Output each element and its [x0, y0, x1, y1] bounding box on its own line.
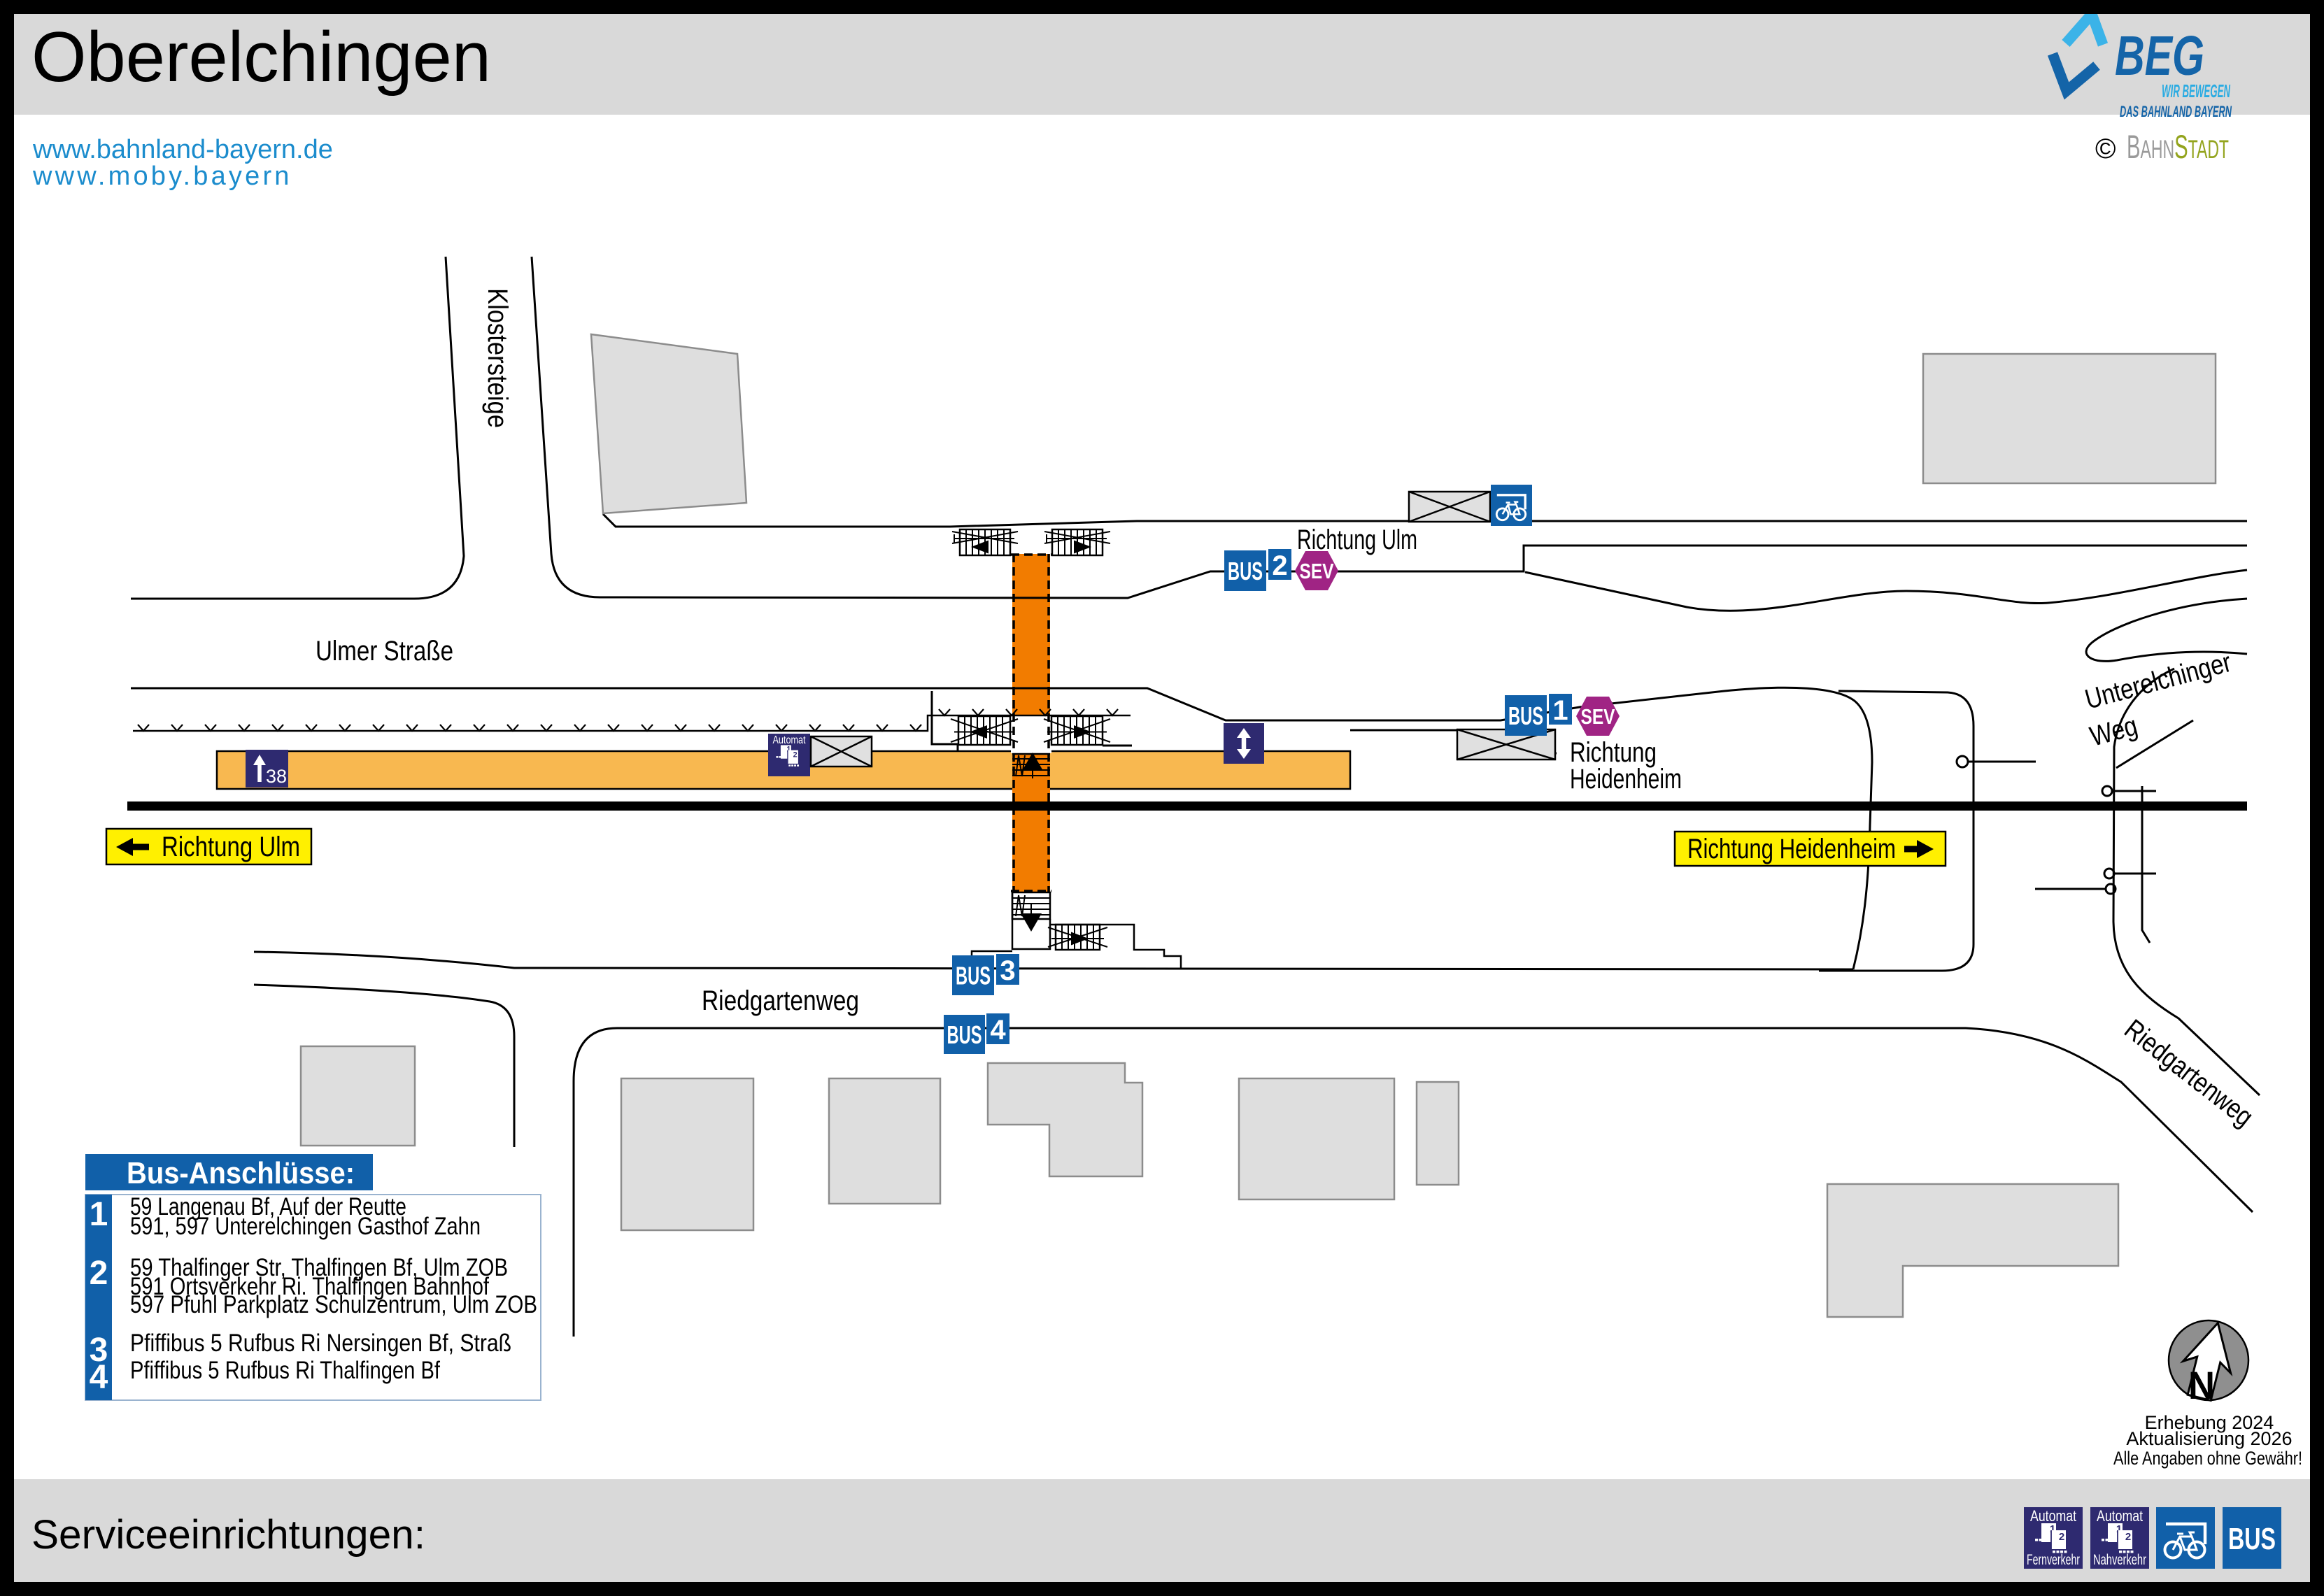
svg-text:Klostersteige: Klostersteige [482, 288, 513, 428]
svg-text:2: 2 [2059, 1531, 2064, 1543]
svg-text:www.bahnland-bayern.de: www.bahnland-bayern.de [32, 135, 333, 164]
svg-text:Richtung Heidenheim: Richtung Heidenheim [1687, 834, 1896, 864]
svg-text:2: 2 [1272, 550, 1287, 581]
svg-text:591, 597 Unterelchingen Gastho: 591, 597 Unterelchingen Gasthof Zahn [130, 1213, 481, 1240]
svg-text:Richtung Ulm: Richtung Ulm [1297, 525, 1417, 555]
svg-text:BUS: BUS [2228, 1522, 2276, 1556]
svg-text:Serviceeinrichtungen:: Serviceeinrichtungen: [31, 1512, 425, 1558]
svg-text:Oberelchingen: Oberelchingen [31, 18, 491, 97]
svg-text:Pfiffibus 5 Rufbus Ri Nersinge: Pfiffibus 5 Rufbus Ri Nersingen Bf, Stra… [130, 1330, 511, 1357]
svg-text:Automat: Automat [773, 734, 807, 746]
svg-text:Alle Angaben ohne Gewähr!: Alle Angaben ohne Gewähr! [2113, 1448, 2302, 1469]
svg-text:©: © [2095, 134, 2116, 164]
svg-text:www.moby.bayern: www.moby.bayern [32, 162, 292, 191]
svg-text:BUS: BUS [947, 1020, 982, 1049]
svg-text:Automat: Automat [2097, 1507, 2143, 1525]
svg-text:1: 1 [1552, 695, 1568, 726]
svg-text:2: 2 [90, 1255, 108, 1292]
svg-text:Riedgartenweg: Riedgartenweg [702, 985, 859, 1016]
svg-text:SEV: SEV [1581, 704, 1615, 729]
svg-text:Heidenheim: Heidenheim [1570, 764, 1682, 795]
svg-text:38: 38 [266, 766, 287, 787]
svg-text:3: 3 [1000, 955, 1015, 986]
svg-text:4: 4 [990, 1015, 1006, 1046]
svg-text:Bus-Anschlüsse:: Bus-Anschlüsse: [127, 1156, 355, 1190]
svg-text:SEV: SEV [1300, 559, 1334, 583]
svg-text:Pfiffibus 5 Rufbus Ri Thalfing: Pfiffibus 5 Rufbus Ri Thalfingen Bf [130, 1357, 440, 1384]
svg-text:Fernverkehr: Fernverkehr [2027, 1552, 2080, 1568]
svg-text:N: N [2188, 1363, 2215, 1407]
svg-text:Ulmer Straße: Ulmer Straße [316, 636, 453, 667]
svg-text:BEG: BEG [2115, 24, 2204, 87]
svg-text:DAS BAHNLAND BAYERN: DAS BAHNLAND BAYERN [2120, 103, 2232, 120]
svg-text:BUS: BUS [956, 962, 991, 990]
svg-text:2: 2 [793, 751, 798, 760]
svg-text:Aktualisierung 2026: Aktualisierung 2026 [2126, 1428, 2292, 1449]
svg-text:BUS: BUS [1228, 557, 1263, 585]
svg-text:597 Pfuhl Parkplatz Schulzentr: 597 Pfuhl Parkplatz Schulzentrum, Ulm ZO… [130, 1291, 537, 1318]
svg-text:WIR BEWEGEN: WIR BEWEGEN [2162, 80, 2231, 101]
svg-text:4: 4 [90, 1359, 108, 1396]
svg-text:1: 1 [90, 1196, 108, 1233]
svg-text:Nahverkehr: Nahverkehr [2093, 1552, 2146, 1568]
svg-text:BUS: BUS [1508, 701, 1543, 730]
svg-text:Richtung Ulm: Richtung Ulm [162, 832, 300, 862]
svg-text:2: 2 [2125, 1531, 2131, 1543]
svg-text:Automat: Automat [2030, 1507, 2076, 1525]
